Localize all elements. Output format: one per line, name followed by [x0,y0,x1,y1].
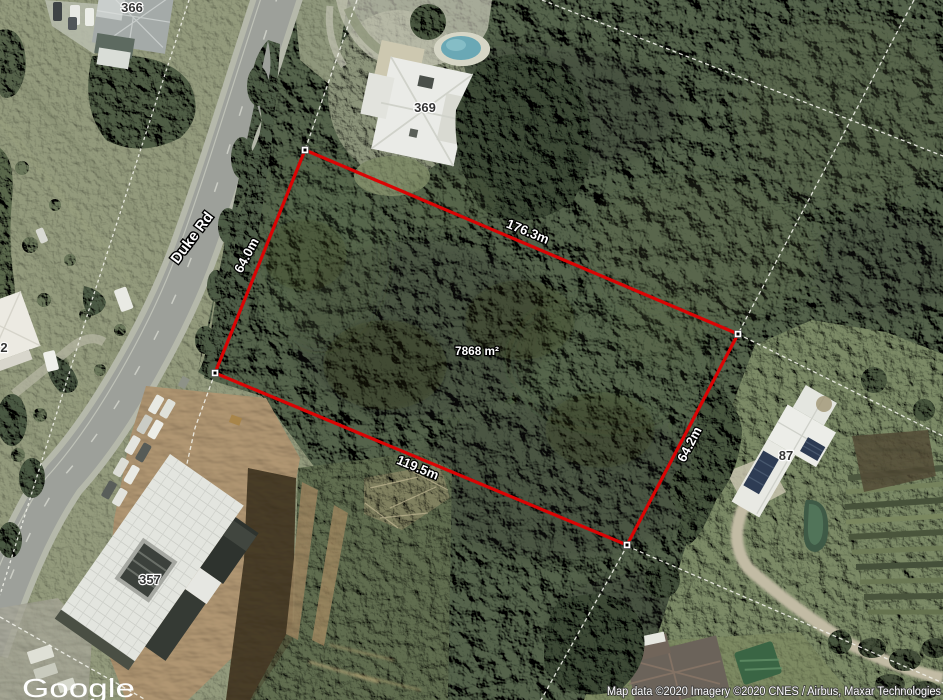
svg-text:Map data ©2020 Imagery ©2020 C: Map data ©2020 Imagery ©2020 CNES / Airb… [607,684,941,698]
svg-text:369: 369 [414,100,436,115]
svg-text:2: 2 [0,340,7,355]
svg-text:366: 366 [121,0,143,15]
svg-text:87: 87 [779,448,793,463]
svg-text:Google: Google [22,673,135,700]
svg-text:357: 357 [139,572,161,587]
svg-text:7868 m²: 7868 m² [455,344,499,358]
